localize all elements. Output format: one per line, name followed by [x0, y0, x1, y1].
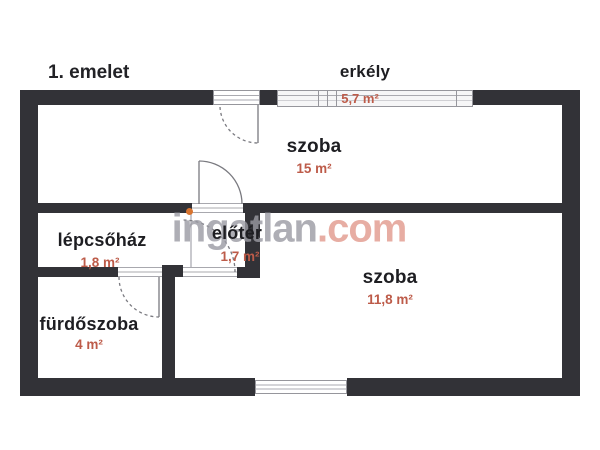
room-area-furdoszoba: 4 m²: [75, 337, 103, 352]
watermark: ingatlan.com: [172, 207, 407, 252]
door-arc-furdoszoba: [119, 277, 159, 317]
room-label-szoba-bottom: szoba: [363, 267, 418, 289]
room-area-eloter: 1,7 m²: [220, 249, 259, 264]
room-area-szoba-bottom: 11,8 m²: [367, 292, 413, 307]
door-arc-szoba-eloter: [199, 161, 242, 204]
door-arc-balcony: [220, 107, 258, 143]
room-label-lepcsohaz: lépcsőház: [58, 230, 147, 251]
room-area-erkely: 5,7 m²: [341, 91, 379, 106]
room-label-szoba-top: szoba: [287, 136, 342, 158]
watermark-suffix: .com: [317, 207, 406, 251]
room-area-lepcsohaz: 1,8 m²: [80, 255, 119, 270]
watermark-i-dot: [186, 208, 193, 215]
room-area-szoba-top: 15 m²: [296, 161, 331, 176]
floor-title: 1. emelet: [48, 62, 129, 84]
room-label-erkely: erkély: [340, 62, 390, 82]
room-label-furdoszoba: fürdőszoba: [40, 314, 139, 335]
floorplan: 1. emelet erkély 5,7 m²: [0, 0, 600, 450]
room-label-eloter: előtér: [212, 223, 262, 244]
